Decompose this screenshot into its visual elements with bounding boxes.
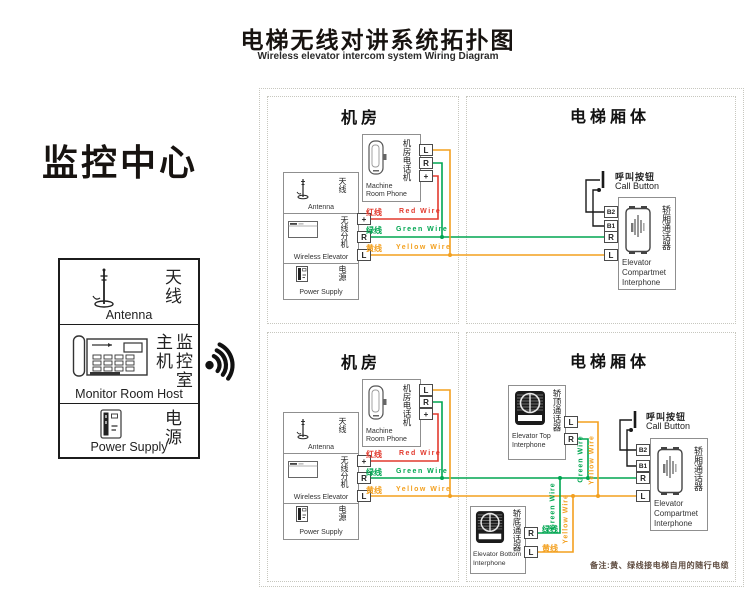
call-button-wire-b2-bottom: [620, 420, 636, 450]
wireless-unit-box-bottom: 天线 Antenna 无线分机 Wireless Elevator 电源 Pow…: [283, 412, 359, 540]
machine-room-phone-icon: [367, 385, 389, 421]
unit-power-row: 电源 Power Supply: [284, 504, 358, 537]
unit-wireless-zh: 无线分机: [339, 216, 350, 258]
monitor-antenna-row: 天线 Antenna: [60, 260, 198, 325]
terminal-b2: B2: [636, 444, 650, 456]
speaker-interphone-icon: [514, 390, 546, 428]
machine-room-phone-icon: [367, 140, 389, 176]
host-label-en: Monitor Room Host: [60, 387, 198, 401]
unit-power-en: Power Supply: [284, 529, 358, 536]
terminal-l: L: [564, 416, 578, 428]
compartment-interphone-box-top: 轿厢通话器 Elevator Compartmet Interphone: [618, 197, 676, 290]
wireless-unit-box-top: 天线 Antenna 无线分机 Wireless Elevator 电源 Pow…: [283, 172, 359, 300]
power-label-en: Power Supply: [60, 440, 198, 454]
compartment-interphone-zh: 轿厢通话器: [692, 446, 705, 504]
red-wire-label-zh: 红线: [366, 449, 382, 460]
junction-dot: [448, 253, 452, 257]
machine-room-phone-zh: 机房电话机: [401, 384, 413, 430]
terminal-r: R: [524, 527, 538, 539]
machine-room-phone-en-1: Machine: [366, 183, 392, 191]
yellow-wire-vertical-label: Yellow Wire: [589, 435, 596, 485]
terminal-l: L: [419, 384, 433, 396]
junction-dot: [448, 494, 452, 498]
machine-room-phone-en-2: Room Phone: [366, 436, 407, 444]
green-wire-label-zh: 绿线: [366, 225, 382, 236]
yellow-wire-label-en: Yellow Wire: [396, 244, 451, 251]
unit-antenna-zh: 天线: [337, 177, 348, 199]
power-supply-icon: [296, 506, 308, 522]
unit-wireless-zh: 无线分机: [339, 456, 350, 498]
speaker-interphone-icon: [475, 510, 505, 546]
antenna-icon: [296, 176, 310, 200]
wireless-signal-icon: [200, 334, 252, 388]
monitor-host-row: 监控室主机 Monitor Room Host: [60, 325, 198, 404]
call-button-wire-b2-top: [586, 180, 604, 212]
terminal-l: L: [419, 144, 433, 156]
call-button-contact-top: [597, 188, 601, 192]
monitor-power-row: 电源 Power Supply: [60, 404, 198, 456]
compartment-interphone-icon: [656, 446, 684, 496]
terminal-r: R: [636, 472, 650, 484]
unit-wireless-en: Wireless Elevator: [284, 494, 358, 501]
terminal-plus: +: [419, 170, 433, 182]
compartment-interphone-en-1: Elevator: [622, 258, 651, 267]
junction-dot: [596, 494, 600, 498]
junction-dot: [571, 494, 575, 498]
junction-dot: [440, 235, 444, 239]
junction-dot: [440, 476, 444, 480]
terminal-r: R: [564, 433, 578, 445]
compartment-interphone-zh: 轿厢通话器: [660, 205, 673, 263]
call-button-label-en: Call Button: [646, 421, 690, 431]
compartment-interphone-en-2: Compartmet: [622, 268, 666, 277]
antenna-label-en: Antenna: [60, 308, 198, 322]
page-subtitle: Wireless elevator intercom system Wiring…: [228, 51, 528, 62]
terminal-b1: B1: [636, 460, 650, 472]
terminal-plus: +: [419, 408, 433, 420]
elevator-body-header-top: 电梯厢体: [570, 103, 650, 127]
yellow-wire-label-zh: 黄线: [366, 485, 382, 496]
machine-room-phone-en-1: Machine: [366, 428, 392, 436]
elevator-top-interphone-box: 轿顶通话器 Elevator Top Interphone: [508, 385, 566, 460]
call-button-wire-b1-bottom: [627, 430, 636, 466]
compartment-interphone-en-3: Interphone: [654, 519, 692, 528]
green-wire-vertical-label: Green Wire: [550, 482, 557, 529]
red-wire-label-en: Red Wire: [399, 208, 441, 215]
top-interphone-en-2: Interphone: [512, 442, 545, 450]
call-button-wire-b1-top: [593, 190, 604, 226]
unit-antenna-row: 天线 Antenna: [284, 413, 358, 454]
bottom-interphone-en-2: Interphone: [473, 560, 506, 568]
machine-room-phone-en-2: Room Phone: [366, 191, 407, 199]
yellow-wire-label-zh: 黄线: [366, 243, 382, 254]
wireless-unit-icon: [288, 461, 318, 478]
terminal-r: R: [419, 396, 433, 408]
antenna-label-zh: 天线: [159, 268, 184, 312]
power-supply-icon: [100, 409, 122, 439]
monitor-center-heading: 监控中心: [42, 134, 198, 186]
red-wire-label-zh: 红线: [366, 207, 382, 218]
red-wire-label-en: Red Wire: [399, 450, 441, 457]
terminal-l: L: [636, 490, 650, 502]
compartment-interphone-icon: [624, 205, 652, 255]
unit-wireless-en: Wireless Elevator: [284, 254, 358, 261]
green-wire-label-zh: 绿线: [366, 467, 382, 478]
compartment-interphone-en-2: Compartmet: [654, 509, 698, 518]
machine-room-header-top: 机房: [341, 104, 381, 128]
wireless-unit-icon: [288, 221, 318, 238]
compartment-interphone-en-3: Interphone: [622, 278, 660, 287]
power-supply-icon: [296, 266, 308, 282]
host-label-zh: 监控室主机: [152, 333, 192, 393]
yellow-wire-vertical-label: Yellow Wire: [563, 494, 570, 544]
unit-power-zh: 电源: [337, 265, 348, 285]
terminal-r: R: [419, 157, 433, 169]
terminal-l: L: [604, 249, 618, 261]
yellow-wire-label-zh: 黄线: [542, 543, 558, 554]
unit-antenna-row: 天线 Antenna: [284, 173, 358, 214]
machine-room-header-bottom: 机房: [341, 349, 381, 373]
unit-power-en: Power Supply: [284, 289, 358, 296]
compartment-interphone-en-1: Elevator: [654, 499, 683, 508]
green-wire-label-en: Green Wire: [396, 468, 448, 475]
antenna-icon: [90, 266, 118, 310]
yellow-wire-label-en: Yellow Wire: [396, 486, 451, 493]
page-title: 电梯无线对讲系统拓扑图: [228, 21, 528, 55]
monitor-center-box: 天线 Antenna 监控室主机 Monitor Room Host: [58, 258, 200, 459]
machine-room-phone-box-bottom: 机房电话机 Machine Room Phone: [362, 379, 421, 447]
compartment-interphone-box-bottom: 轿厢通话器 Elevator Compartmet Interphone: [650, 438, 708, 531]
unit-antenna-en: Antenna: [284, 444, 358, 451]
unit-power-row: 电源 Power Supply: [284, 264, 358, 297]
antenna-icon: [296, 416, 310, 440]
monitor-phone-icon: [72, 333, 150, 381]
unit-wireless-row: 无线分机 Wireless Elevator: [284, 454, 358, 504]
machine-room-phone-box-top: 机房电话机 Machine Room Phone: [362, 134, 421, 202]
unit-power-zh: 电源: [337, 505, 348, 525]
elevator-body-header-bottom: 电梯厢体: [570, 348, 650, 372]
call-button-contact-bottom: [629, 428, 633, 432]
bottom-interphone-en-1: Elevator Bottom: [473, 551, 521, 559]
elevator-bottom-interphone-box: 轿底通话器 Elevator Bottom Interphone: [470, 506, 526, 574]
unit-antenna-en: Antenna: [284, 204, 358, 211]
top-interphone-zh: 轿顶通话器: [551, 389, 563, 439]
unit-wireless-row: 无线分机 Wireless Elevator: [284, 214, 358, 264]
terminal-r: R: [604, 231, 618, 243]
terminal-l: L: [524, 546, 538, 558]
green-wire-vertical-label: Green Wire: [578, 435, 585, 482]
green-wire-label-en: Green Wire: [396, 226, 448, 233]
wiring-diagram-canvas: 电梯无线对讲系统拓扑图 Wireless elevator intercom s…: [0, 0, 750, 589]
unit-antenna-zh: 天线: [337, 417, 348, 439]
machine-room-phone-zh: 机房电话机: [401, 139, 413, 185]
terminal-b2: B2: [604, 206, 618, 218]
footnote: 备注:黄、绿线接电梯自用的随行电缆: [590, 560, 729, 571]
call-button-label-en: Call Button: [615, 181, 659, 191]
junction-dot: [558, 476, 562, 480]
top-interphone-en-1: Elevator Top: [512, 433, 551, 441]
